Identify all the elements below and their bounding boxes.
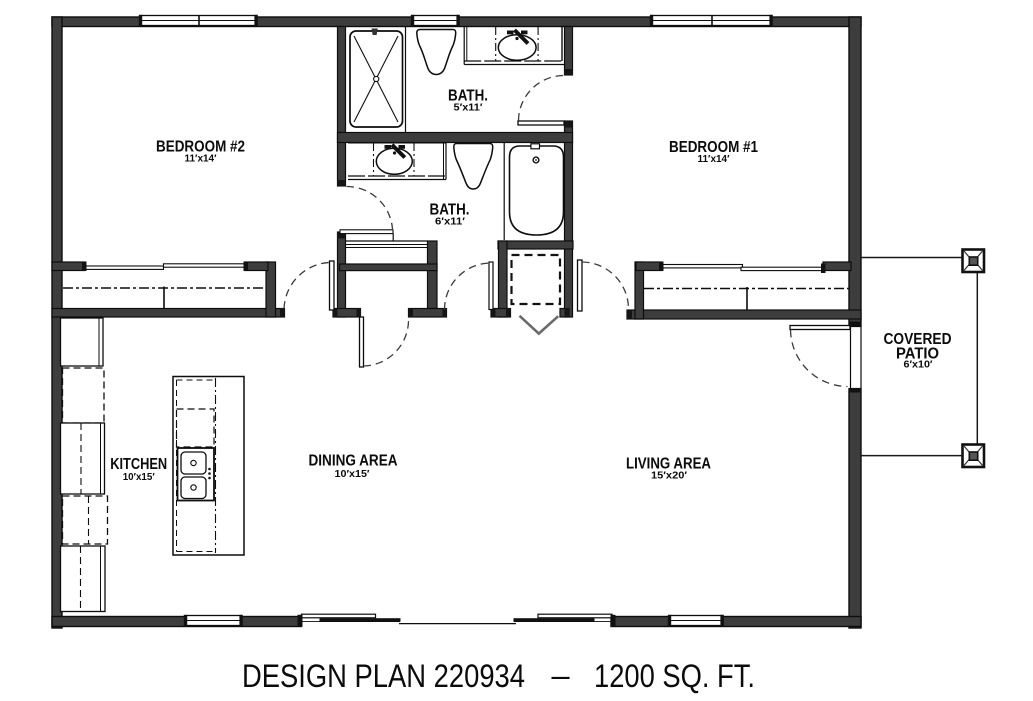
svg-text:11′x14′: 11′x14′ [185,154,218,165]
svg-text:10′x15′: 10′x15′ [335,469,371,480]
svg-text:1200 SQ. FT.: 1200 SQ. FT. [594,658,755,694]
svg-text:11′x14′: 11′x14′ [698,154,731,165]
svg-text:DESIGN PLAN 220934: DESIGN PLAN 220934 [242,658,525,694]
svg-text:–: – [551,657,570,693]
svg-text:10′x15′: 10′x15′ [123,472,156,483]
svg-text:15′x20′: 15′x20′ [651,471,688,482]
svg-text:5′x11′: 5′x11′ [454,103,484,114]
svg-text:KITCHEN: KITCHEN [110,456,167,473]
svg-text:6′x10′: 6′x10′ [904,360,934,371]
svg-text:DINING AREA: DINING AREA [309,453,398,470]
svg-text:6′x11′: 6′x11′ [435,217,466,228]
